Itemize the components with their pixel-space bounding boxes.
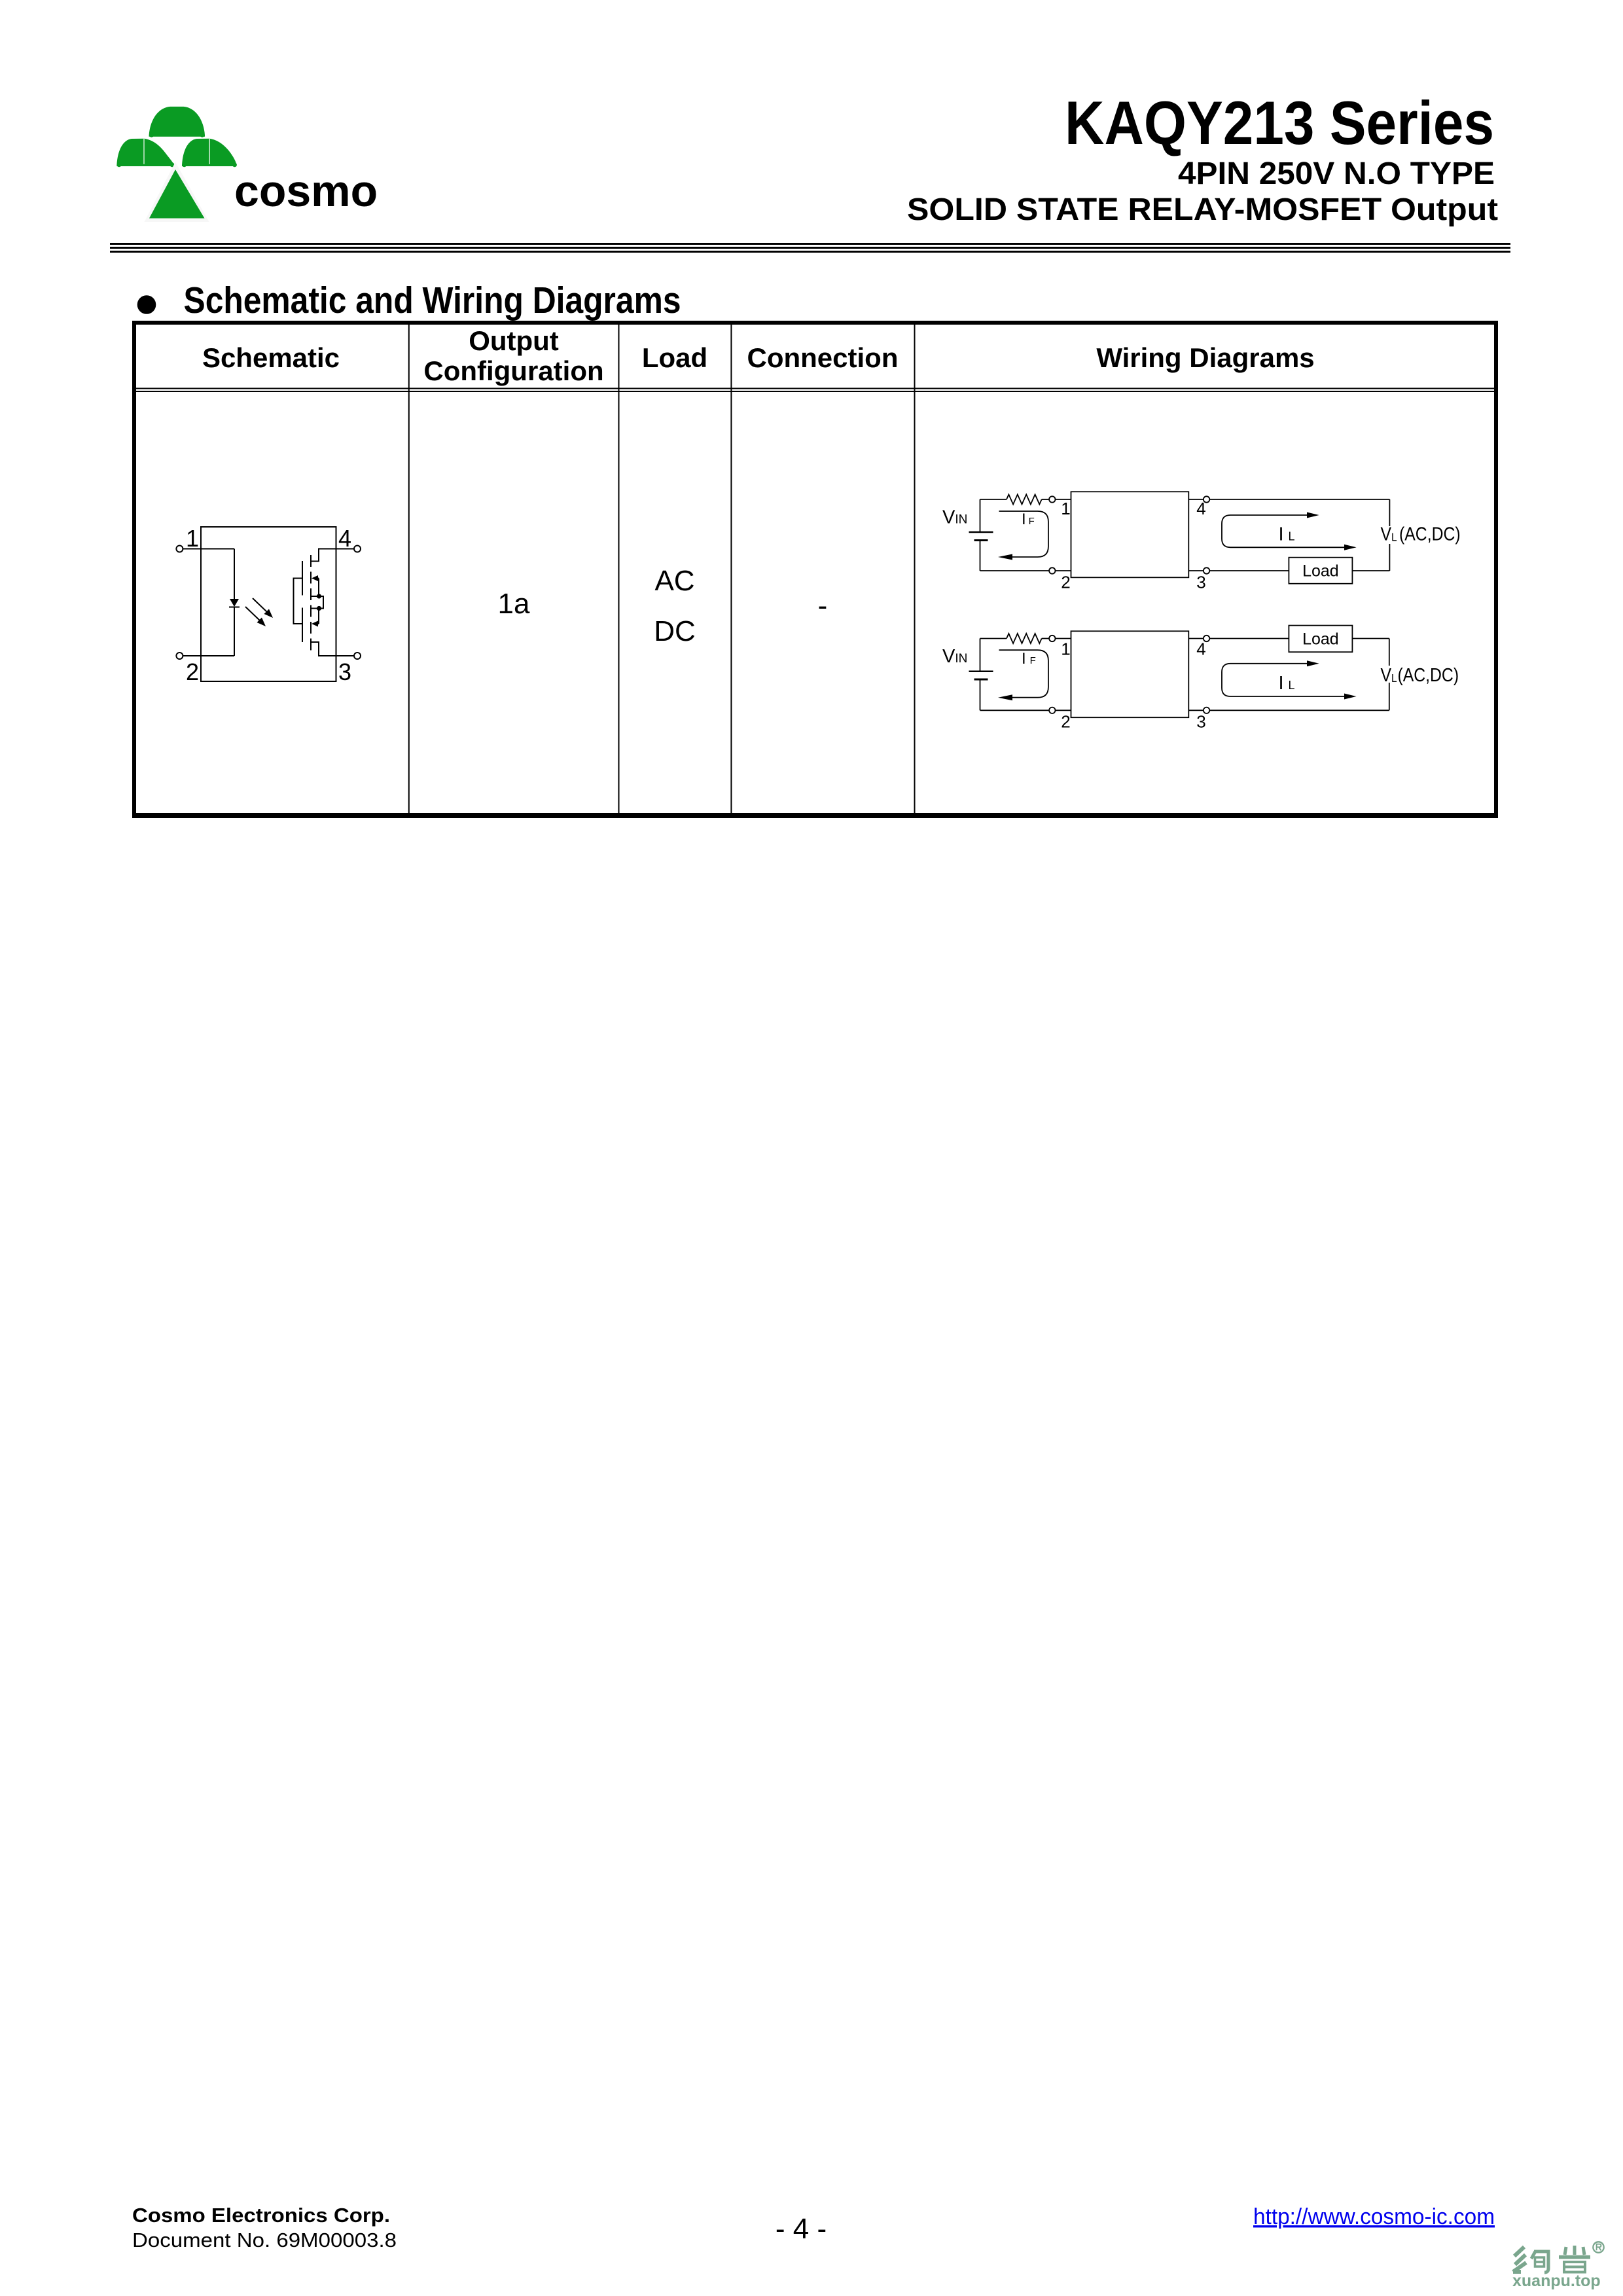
- svg-text:I: I: [1278, 524, 1283, 545]
- svg-text:L: L: [1289, 530, 1295, 543]
- svg-text:Cosmo Electronics Corp.: Cosmo Electronics Corp.: [132, 2204, 390, 2227]
- svg-text:Schematic and Wiring Diagrams: Schematic and Wiring Diagrams: [184, 279, 681, 321]
- svg-text:2: 2: [186, 658, 199, 685]
- svg-text:SOLID STATE RELAY-MOSFET Outpu: SOLID STATE RELAY-MOSFET Output: [907, 192, 1498, 227]
- svg-text:xuanpu.top: xuanpu.top: [1512, 2272, 1601, 2290]
- svg-text:Load: Load: [642, 342, 707, 373]
- svg-text:DC: DC: [654, 615, 696, 647]
- svg-text:4: 4: [338, 525, 351, 552]
- svg-text:Schematic: Schematic: [202, 342, 340, 373]
- svg-text:-: -: [818, 590, 828, 622]
- svg-text:4: 4: [1196, 499, 1205, 518]
- svg-text:Configuration: Configuration: [423, 355, 603, 386]
- svg-text:Connection: Connection: [747, 342, 899, 373]
- svg-text:1: 1: [1061, 639, 1070, 659]
- svg-text:4PIN 250V N.O TYPE: 4PIN 250V N.O TYPE: [1178, 156, 1495, 191]
- svg-text:Load: Load: [1302, 562, 1339, 581]
- svg-text:1a: 1a: [498, 588, 530, 620]
- svg-text:3: 3: [338, 658, 351, 685]
- svg-text:2: 2: [1061, 573, 1070, 592]
- svg-text:Load: Load: [1302, 630, 1339, 649]
- svg-text:Output: Output: [469, 325, 559, 356]
- svg-text:Document No. 69M00003.8: Document No. 69M00003.8: [132, 2229, 397, 2251]
- svg-text:- 4 -: - 4 -: [776, 2213, 827, 2245]
- svg-text:1: 1: [1061, 499, 1070, 518]
- svg-text:cosmo: cosmo: [234, 166, 378, 216]
- svg-text:I: I: [1278, 673, 1283, 694]
- svg-text:Wiring Diagrams: Wiring Diagrams: [1096, 342, 1314, 373]
- svg-text:3: 3: [1196, 712, 1205, 732]
- svg-text:KAQY213 Series: KAQY213 Series: [1065, 88, 1494, 157]
- svg-text:http://www.cosmo-ic.com: http://www.cosmo-ic.com: [1253, 2204, 1495, 2229]
- svg-text:4: 4: [1196, 639, 1205, 659]
- svg-text:L: L: [1289, 679, 1295, 692]
- svg-text:2: 2: [1061, 712, 1070, 732]
- svg-text:AC: AC: [654, 565, 694, 597]
- svg-text:1: 1: [186, 525, 199, 552]
- svg-text:3: 3: [1196, 573, 1205, 592]
